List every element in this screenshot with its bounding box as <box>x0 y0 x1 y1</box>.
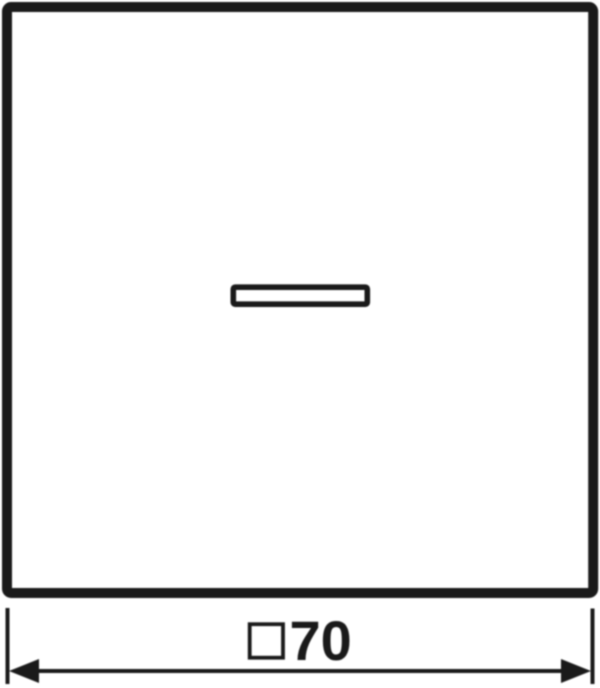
svg-text:70: 70 <box>290 609 352 672</box>
